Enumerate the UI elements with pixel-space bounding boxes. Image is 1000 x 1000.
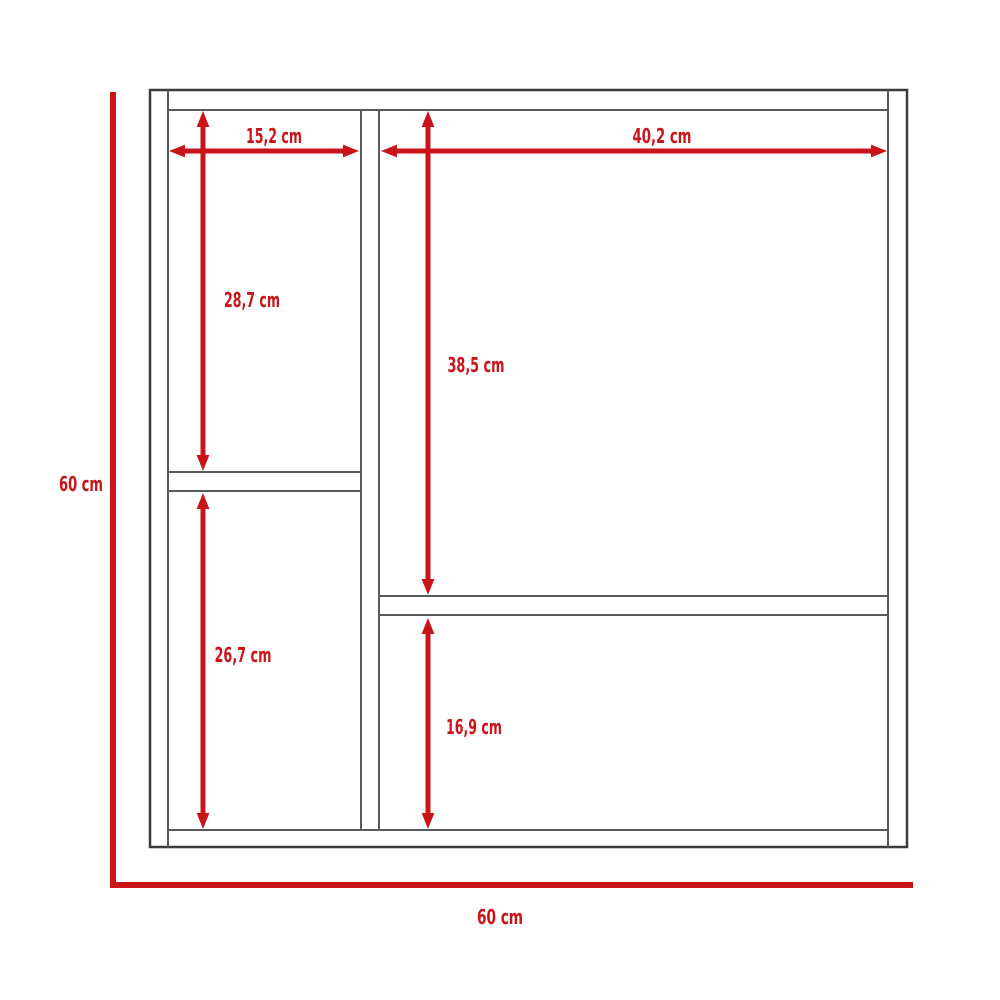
arrowhead-down-icon <box>422 813 435 829</box>
left-lower-compartment-height-arrow <box>197 493 210 829</box>
cabinet-outer-frame <box>150 90 907 847</box>
arrowhead-down-icon <box>197 455 210 471</box>
left-upper-compartment-height-label: 28,7 cm <box>224 288 280 312</box>
dimension-labels: 15,2 cm 40,2 cm 28,7 cm 38,5 cm 26,7 cm … <box>59 124 692 929</box>
arrowhead-right-icon <box>343 145 359 158</box>
right-lower-compartment-height-label: 16,9 cm <box>446 715 502 739</box>
overall-height-and-width-line <box>113 92 913 885</box>
overall-extent-lines <box>113 92 913 885</box>
right-lower-compartment-height-arrow <box>422 618 435 829</box>
overall-height-label: 60 cm <box>59 472 103 496</box>
right-compartment-width-label: 40,2 cm <box>633 124 692 148</box>
left-upper-compartment-height-arrow <box>197 111 210 471</box>
arrowhead-left-icon <box>169 145 185 158</box>
overall-width-label: 60 cm <box>477 905 523 929</box>
arrowhead-down-icon <box>422 579 435 595</box>
arrowhead-up-icon <box>197 493 210 509</box>
cabinet-dimension-drawing: 15,2 cm 40,2 cm 28,7 cm 38,5 cm 26,7 cm … <box>0 0 1000 1000</box>
right-upper-compartment-height-label: 38,5 cm <box>448 353 505 377</box>
arrowhead-up-icon <box>422 111 435 127</box>
left-compartment-width-label: 15,2 cm <box>246 124 302 148</box>
arrowhead-down-icon <box>197 813 210 829</box>
dimension-arrows <box>169 111 887 829</box>
arrowhead-left-icon <box>381 145 397 158</box>
left-lower-compartment-height-label: 26,7 cm <box>215 643 272 667</box>
arrowhead-up-icon <box>422 618 435 634</box>
arrowhead-up-icon <box>197 111 210 127</box>
arrowhead-right-icon <box>871 145 887 158</box>
right-upper-compartment-height-arrow <box>422 111 435 595</box>
cabinet-outline <box>150 90 907 847</box>
dimension-diagram: 15,2 cm 40,2 cm 28,7 cm 38,5 cm 26,7 cm … <box>0 0 1000 1000</box>
